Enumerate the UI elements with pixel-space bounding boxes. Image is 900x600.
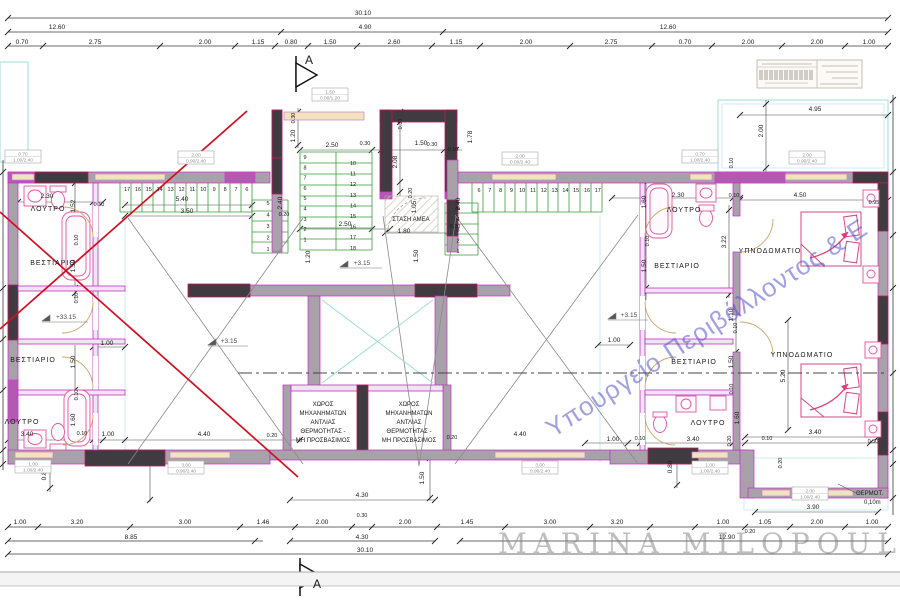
machine-room-label: ΜΗΧΑΝΗΜΑΤΩΝ	[386, 411, 433, 417]
stair-tread-number: 7	[488, 188, 491, 194]
section-letter: A	[313, 577, 321, 591]
dim-label: 0.10	[645, 236, 651, 247]
machine-room-label: ΜΗ ΠΡΟΣΒΑΣΙΜΟΣ	[296, 438, 351, 444]
machine-room-label: ΘΕΡΜΟΤΗΤΑΣ -	[301, 429, 346, 435]
dim-label: 0.20	[778, 458, 784, 469]
stair-tread-number: 8	[303, 165, 306, 171]
room-label: ΛΟΥΤΡΟ	[31, 206, 66, 213]
dim-label: 1.20	[305, 250, 312, 263]
dim-label: 1.60	[70, 413, 77, 426]
dim-label: 4.50	[794, 192, 807, 199]
dim-label: 1.20	[290, 129, 297, 142]
dim-label: 4.95	[809, 106, 822, 113]
stair-tread-number: 2	[303, 227, 306, 233]
dim-label: 3.20	[611, 519, 624, 526]
dim-label: 0.80	[285, 39, 298, 46]
stair-tread-number: 1	[303, 237, 306, 243]
dim-label: 1.45	[461, 519, 474, 526]
dim-label: 0.95	[869, 200, 880, 206]
opening-size-label: 3.00	[181, 462, 191, 468]
dim-label: 3.40	[809, 429, 822, 436]
dim-label: 4.40	[514, 431, 527, 438]
stair-tread-number: 8	[224, 187, 227, 193]
dim-label: 5.40	[176, 196, 189, 203]
opening-sill-label: 1.00/2.40	[13, 158, 33, 164]
machine-room-label: ΜΗ ΠΡΟΣΒΑΣΙΜΟΣ	[382, 438, 437, 444]
machine-room-label: ΜΗΧΑΝΗΜΑΤΩΝ	[300, 411, 347, 417]
insulation-callout: ΘΕΡΜΟΤ.	[856, 491, 883, 497]
stair-tread-number: 3	[303, 217, 306, 223]
stair-tread-number: 5	[266, 201, 269, 207]
dim-label: 0.10	[94, 202, 105, 208]
dim-label: 2.00	[520, 39, 533, 46]
dim-overall-bottom: 30.10	[357, 547, 374, 554]
dim-label: 0.30	[357, 513, 368, 519]
dim-label: 4.30	[356, 534, 369, 541]
room-label: ΛΟΥΤΡΟ	[691, 420, 726, 427]
stair-tread-number: 10	[350, 161, 356, 167]
opening-size-label: 0.70	[695, 151, 705, 157]
opening-size-label: 3.00	[535, 462, 545, 468]
dim-label: 0.10	[74, 293, 80, 304]
stair-tread-number: 15	[146, 187, 152, 193]
dim-label: 1.80	[398, 228, 411, 235]
room-label: ΥΠΝΟΔΩΜΑΤΙΟ	[771, 352, 834, 359]
opening-size-label: 1.00	[28, 461, 38, 467]
stair-tread-number: 7	[303, 176, 306, 182]
dim-label: 1.50	[641, 259, 648, 272]
dim-label: 1.00	[607, 436, 620, 443]
elevation-label: +3.15	[221, 338, 238, 345]
stair-tread-number: 3	[456, 228, 459, 234]
stair-tread-number: 3	[266, 224, 269, 230]
dim-label: 0.20	[408, 188, 414, 199]
dim-label: 0.80	[667, 460, 674, 473]
stair-tread-number: 2	[456, 238, 459, 244]
dim-label: 3.20	[71, 519, 84, 526]
dim-label: 2.60	[388, 39, 401, 46]
dim-label: 0.30	[427, 142, 438, 148]
dim-label: 2.50	[326, 142, 339, 149]
stair-tread-number: 4	[266, 213, 269, 219]
dim-label: 0.20	[727, 436, 733, 447]
dim-label: 2.40	[277, 196, 284, 209]
stair-tread-number: 8	[499, 188, 502, 194]
dim-label: 0.20	[267, 433, 278, 439]
stair-tread-number: 10	[519, 188, 525, 194]
stair-tread-number: 11	[530, 188, 536, 194]
dim-label: 2.30	[41, 193, 54, 200]
opening-size-label: 2.00	[191, 152, 201, 158]
dim-label: 0.20	[447, 435, 458, 441]
dim-label: 2.00	[199, 39, 212, 46]
opening-sill-label: 1.00/2.40	[800, 495, 820, 501]
insulation-callout: 0,10m	[864, 500, 881, 506]
section-letter: A	[305, 53, 313, 67]
dim-label: 0.30	[360, 141, 371, 147]
stair-tread-number: 18	[350, 246, 356, 252]
room-label: ΛΟΥΤΡΟ	[667, 207, 702, 214]
opening-sill-label: 1.00/2.40	[690, 158, 710, 164]
floor-plan-drawing: 30.1012.604.9012.600.702.752.001.150.801…	[0, 0, 900, 600]
dim-label: 0.10	[77, 431, 88, 437]
room-label: ΒΕΣΤΙΑΡΙΟ	[671, 359, 717, 366]
stair-tread-number: 11	[350, 172, 356, 178]
dim-label: 1.00	[608, 337, 621, 344]
dim-label: 1.05	[759, 519, 772, 526]
stair-tread-number: 14	[350, 203, 356, 209]
opening-sill-label: 0.00/1.20	[320, 96, 340, 102]
stair-tread-number: 6	[245, 187, 248, 193]
room-label: ΒΕΣΤΙΑΡΙΟ	[10, 357, 56, 364]
dim-label: 3.22	[721, 235, 728, 248]
opening-size-label: 0.70	[18, 151, 28, 157]
stair-tread-number: 6	[477, 188, 480, 194]
dim-label: 1.00	[101, 340, 114, 347]
opening-size-label: 2.00	[805, 488, 815, 494]
opening-size-label: 1.00	[705, 462, 715, 468]
stair-tread-number: 7	[234, 187, 237, 193]
room-label: ΒΕΣΤΙΑΡΙΟ	[30, 260, 76, 267]
opening-sill-label: 0.90/2.40	[797, 159, 817, 165]
room-label: ΛΟΥΤΡΟ	[5, 419, 40, 426]
dim-label: 0.10	[74, 235, 80, 246]
dim-label: 2.08	[392, 155, 399, 168]
dim-label: 1.05	[411, 200, 418, 213]
opening-sill-label: 0.00/2.40	[510, 160, 530, 166]
dim-label: 1.00	[717, 519, 730, 526]
dim-label: 1.50	[728, 355, 735, 368]
machine-room-label: ΧΩΡΟΣ	[399, 402, 420, 408]
dim-label: 4.90	[359, 24, 372, 31]
opening-size-label: 1.50	[325, 89, 335, 95]
dim-label: 1.15	[450, 39, 463, 46]
dim-label: 2.75	[605, 39, 618, 46]
stair-tread-number: 1	[266, 247, 269, 253]
dim-label: 1.00	[102, 431, 115, 438]
dim-label: 1.52	[70, 199, 77, 212]
stair-tread-number: 16	[584, 188, 590, 194]
dim-label: 2.00	[316, 519, 329, 526]
dim-label: 1.15	[252, 39, 265, 46]
dim-label: 3.50	[181, 208, 194, 215]
opening-sill-label: 1.00/2.40	[23, 468, 43, 474]
elevation-label: +33.15	[56, 314, 76, 321]
dim-label: 2.00	[399, 519, 412, 526]
machine-room-label: ΘΕΡΜΟΤΗΤΑΣ -	[387, 429, 432, 435]
stair-tread-number: 12	[178, 187, 184, 193]
stair-tread-number: 16	[135, 187, 141, 193]
stair-tread-number: 5	[303, 196, 306, 202]
dim-label: 5.20	[780, 369, 787, 382]
dim-label: 1.50	[324, 39, 337, 46]
dim-label: 3.00	[544, 519, 557, 526]
machine-room-label: ΑΝΤΛΙΑΣ	[311, 420, 336, 426]
dim-label: 8.85	[125, 534, 138, 541]
stair-tread-number: 13	[168, 187, 174, 193]
dim-label: 1.60	[734, 411, 741, 424]
stair-tread-number: 17	[595, 188, 601, 194]
dim-label: 0.30	[291, 113, 297, 124]
bedroom-furniture	[801, 190, 881, 437]
dim-label: 0.10	[729, 158, 735, 169]
dim-label: 12.90	[719, 534, 736, 541]
elevation-label: +3.15	[621, 312, 638, 319]
opening-sill-label: 0.90/2.40	[530, 469, 550, 475]
dim-label: 1.00	[14, 519, 27, 526]
dim-label: 2.00	[758, 124, 765, 137]
stair-tread-number: 15	[350, 214, 356, 220]
stair-tread-number: 13	[552, 188, 558, 194]
dim-label: 1.60	[641, 195, 648, 208]
dim-label: 2.00	[811, 519, 824, 526]
dim-label: 0.30	[868, 439, 879, 445]
stair-tread-number: 6	[303, 186, 306, 192]
dim-label: 3.40	[687, 436, 700, 443]
stair-tread-number: 5	[456, 206, 459, 212]
stair-tread-number: 1	[456, 249, 459, 255]
stair-tread-number: 17	[124, 187, 130, 193]
dim-label: 1.50	[413, 249, 420, 262]
opening-sill-label: 0.90/2.40	[176, 469, 196, 475]
dim-label: 0.10	[762, 436, 773, 442]
stair-tread-number: 9	[303, 155, 306, 161]
dim-label: 3.90	[807, 504, 820, 511]
stair-tread-number: 4	[456, 217, 459, 223]
dim-label: 2.00	[742, 39, 755, 46]
floor-plan-canvas: 30.1012.604.9012.600.702.752.001.150.801…	[0, 0, 900, 600]
dim-label: 0.10	[733, 323, 739, 334]
stair-tread-number: 12	[350, 182, 356, 188]
dim-label: 0.70	[16, 39, 29, 46]
stair-tread-number: 10	[200, 187, 206, 193]
opening-size-label: 2.00	[515, 153, 525, 159]
stair-tread-number: 15	[573, 188, 579, 194]
dim-label: 3.00	[179, 519, 192, 526]
stair-tread-number: 14	[157, 187, 163, 193]
dim-label: 1.00	[863, 39, 876, 46]
dim-label: 0.20	[745, 529, 756, 535]
dim-label: 2.30	[672, 192, 685, 199]
dim-label: 1.00	[866, 519, 879, 526]
dim-label: 0.10	[729, 193, 740, 199]
dim-label: 1.78	[467, 130, 474, 143]
stair-treads	[120, 152, 602, 255]
dim-label: 0.10	[74, 390, 80, 401]
dim-label: 0.10	[729, 384, 735, 395]
opening-size-label: 2.00	[802, 152, 812, 158]
dim-label: 3.40	[21, 431, 34, 438]
opening-sill-label: 0.90/2.40	[186, 159, 206, 165]
dim-label: 2.00	[811, 39, 824, 46]
stair-tread-number: 4	[303, 207, 306, 213]
stair-tread-number: 11	[190, 187, 196, 193]
opening-sill-label: 1.00/2.40	[700, 469, 720, 475]
dim-label: 12.60	[49, 24, 66, 31]
stair-tread-number: 9	[213, 187, 216, 193]
dim-label: 0.10	[635, 436, 646, 442]
dim-label: 0.30	[398, 119, 404, 130]
stair-tread-number: 17	[350, 235, 356, 241]
dim-label: 4.40	[198, 431, 211, 438]
amea-stop-label: ΣΤΑΣΗ ΑΜΕΑ	[392, 217, 429, 223]
room-label: ΥΠΝΟΔΩΜΑΤΙΟ	[739, 248, 802, 255]
approval-stamp	[757, 60, 862, 88]
stair-tread-number: 14	[562, 188, 568, 194]
stair-tread-number: 12	[541, 188, 547, 194]
stair-tread-number: 9	[510, 188, 513, 194]
dim-label: 1.10	[728, 308, 735, 321]
room-label: ΒΕΣΤΙΑΡΙΟ	[654, 263, 700, 270]
elevation-label: +3.15	[354, 260, 371, 267]
dim-label: 0.70	[679, 39, 692, 46]
dim-overall-top: 30.10	[355, 10, 372, 17]
dim-label: 1.50	[419, 471, 426, 484]
door-swings	[62, 207, 773, 445]
dim-label: 2.75	[89, 39, 102, 46]
dim-label: 12.60	[660, 24, 677, 31]
stair-tread-number: 13	[350, 193, 356, 199]
dim-label: 4.30	[356, 492, 369, 499]
dim-label: 0.20	[279, 212, 290, 218]
dim-label: 1.50	[70, 355, 77, 368]
machine-room-label: ΑΝΤΛΙΑΣ	[397, 420, 422, 426]
stair-tread-number: 16	[350, 225, 356, 231]
machine-room-label: ΧΩΡΟΣ	[313, 402, 334, 408]
stair-tread-number: 2	[266, 236, 269, 242]
dim-label: 0.10	[448, 147, 459, 153]
dim-label: 1.46	[257, 519, 270, 526]
